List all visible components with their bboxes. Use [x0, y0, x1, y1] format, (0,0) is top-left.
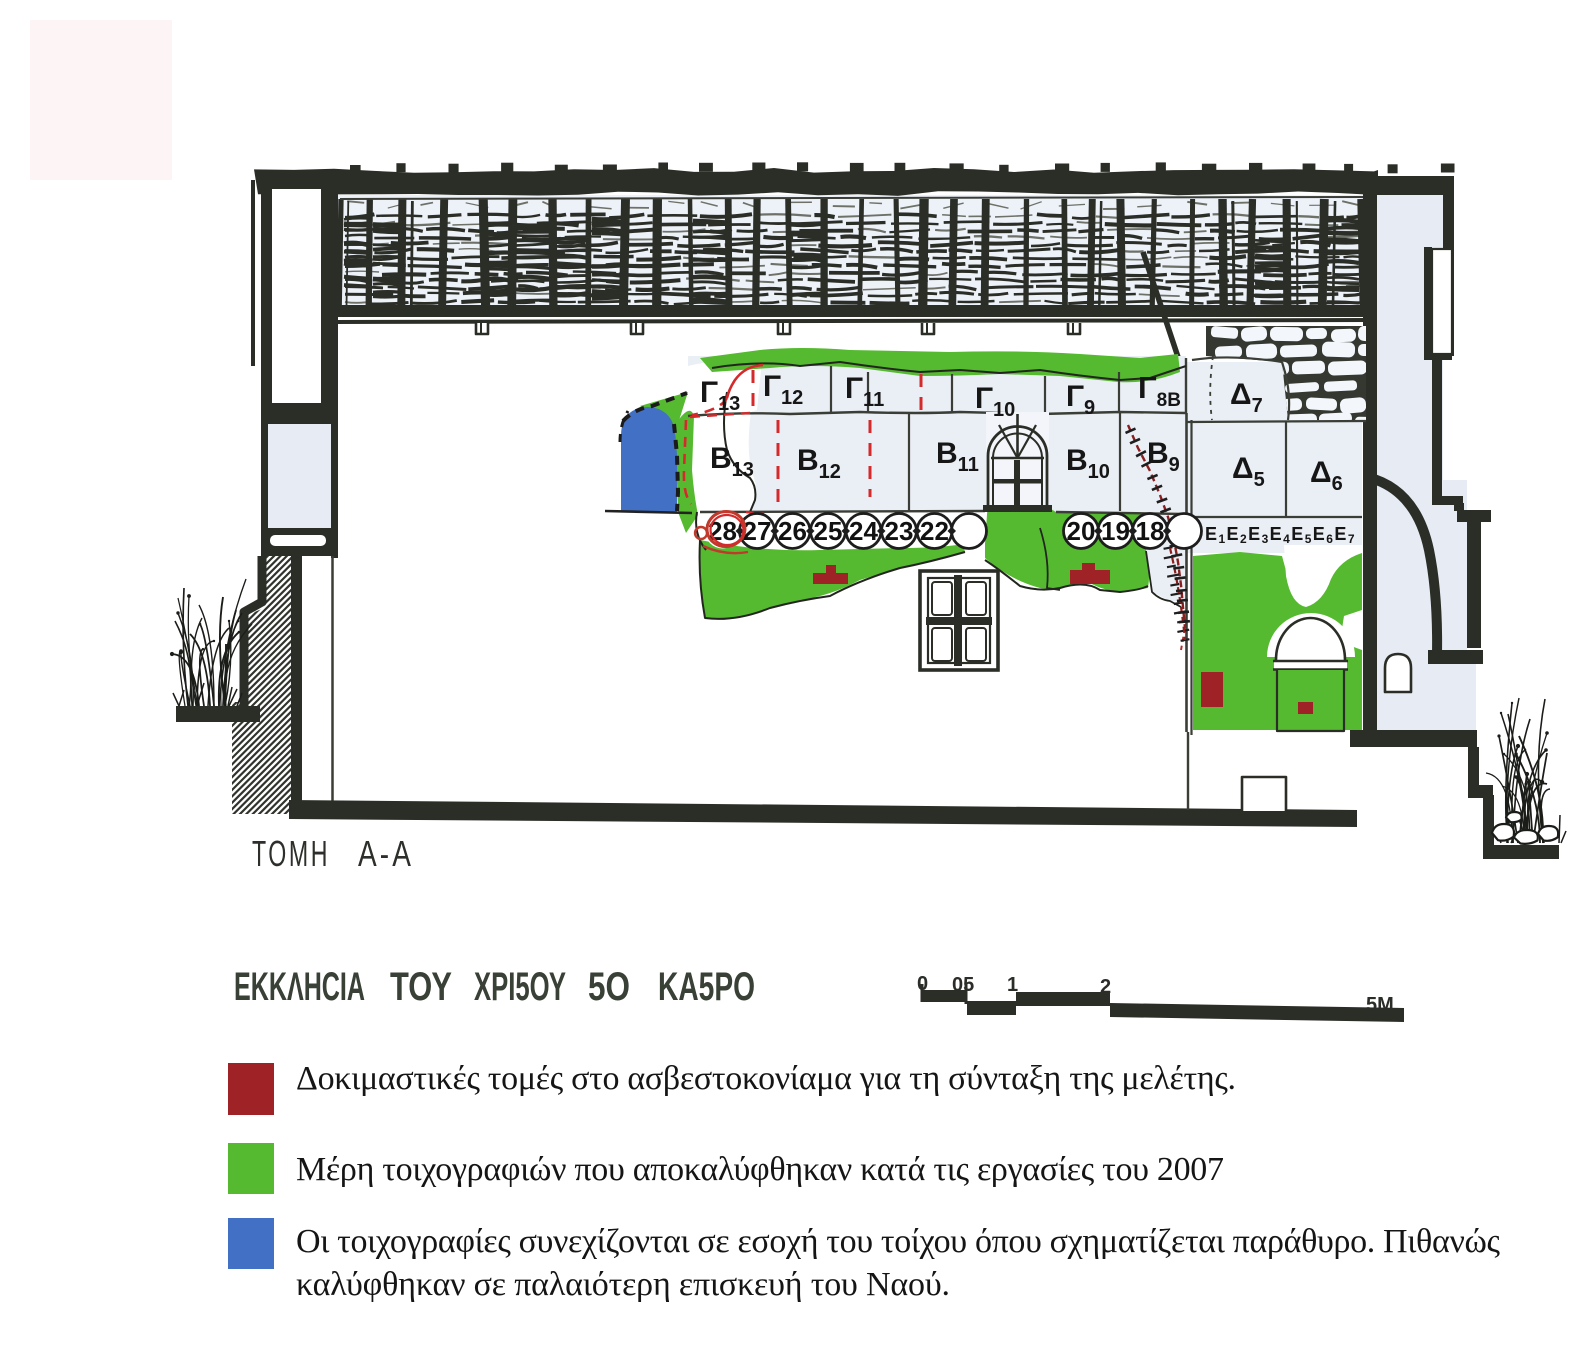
svg-text:Α-Α: Α-Α — [358, 833, 414, 874]
svg-text:27: 27 — [743, 516, 772, 546]
svg-text:24: 24 — [849, 516, 878, 546]
svg-text:25: 25 — [814, 516, 843, 546]
svg-text:20: 20 — [1067, 516, 1096, 546]
svg-text:19: 19 — [1101, 516, 1130, 546]
svg-text:ΕΚΚΛΗCΙΑ: ΕΚΚΛΗCΙΑ — [234, 965, 365, 1009]
svg-text:ΤΟΥ: ΤΟΥ — [390, 965, 452, 1009]
svg-text:0: 0 — [917, 973, 928, 995]
svg-text:18: 18 — [1136, 516, 1165, 546]
svg-text:5Ο: 5Ο — [588, 965, 630, 1009]
svg-text:Ε1Ε2Ε3Ε4Ε5Ε6Ε7: Ε1Ε2Ε3Ε4Ε5Ε6Ε7 — [1205, 524, 1357, 546]
svg-text:2: 2 — [1100, 976, 1111, 998]
svg-text:22: 22 — [920, 516, 949, 546]
svg-text:Δοκιμαστικές τομές στο ασβεστο: Δοκιμαστικές τομές στο ασβεστοκονίαμα γι… — [296, 1060, 1236, 1097]
svg-text:23: 23 — [885, 516, 914, 546]
svg-text:Οι τοιχογραφίες συνεχίζονται σ: Οι τοιχογραφίες συνεχίζονται σε εσοχή το… — [296, 1223, 1501, 1260]
svg-text:ΧΡΙ5ΟΥ: ΧΡΙ5ΟΥ — [474, 965, 566, 1009]
svg-text:ΤΟΜΗ: ΤΟΜΗ — [252, 833, 330, 874]
svg-text:05: 05 — [952, 974, 974, 996]
svg-text:ΚΑ5ΡΟ: ΚΑ5ΡΟ — [658, 965, 755, 1009]
svg-text:5Μ: 5Μ — [1366, 994, 1394, 1016]
svg-text:26: 26 — [778, 516, 807, 546]
svg-text:Μέρη τοιχογραφιών που αποκαλύφ: Μέρη τοιχογραφιών που αποκαλύφθηκαν κατά… — [296, 1151, 1224, 1188]
svg-text:καλύφθηκαν σε παλαιότερη επισκ: καλύφθηκαν σε παλαιότερη επισκευή του Να… — [296, 1266, 950, 1303]
svg-text:1: 1 — [1007, 974, 1018, 996]
